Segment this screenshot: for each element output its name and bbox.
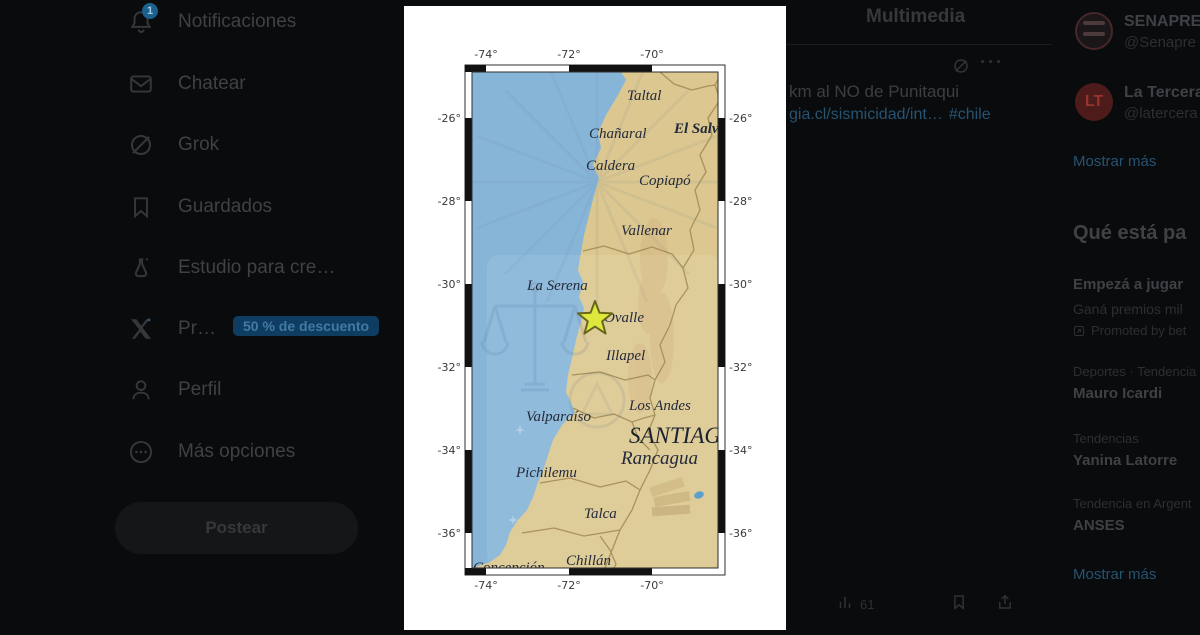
trend-subtitle: Ganá premios mil	[1073, 301, 1183, 317]
sidebar-item-label: Pr…	[178, 318, 216, 340]
grok-actions-icon[interactable]	[952, 57, 970, 75]
share-button[interactable]	[996, 593, 1014, 616]
envelope-icon	[128, 71, 154, 97]
tweet-link[interactable]: gia.cl/sismicidad/int…	[789, 106, 943, 123]
city-label: Pichilemu	[515, 465, 577, 481]
sidebar-item-label: Más opciones	[178, 441, 295, 463]
sidebar-item-grok[interactable]: Grok	[118, 127, 154, 163]
sidebar-item-more[interactable]: Más opciones	[118, 434, 154, 470]
map-lat-labels-right: -26° -28° -30° -32° -34° -36°	[729, 112, 752, 540]
sidebar-item-label: Notificaciones	[178, 11, 296, 33]
sidebar-item-profile[interactable]: Perfil	[118, 372, 154, 408]
share-icon	[996, 593, 1014, 616]
trend-category: Deportes · Tendencia	[1073, 364, 1196, 379]
svg-text:-30°: -30°	[438, 278, 461, 291]
svg-text:-32°: -32°	[438, 361, 461, 374]
city-label: Los Andes	[628, 398, 691, 414]
svg-text:-34°: -34°	[729, 444, 752, 457]
tweet-text: km al NO de Punitaqui	[789, 82, 959, 102]
more-menu-icon[interactable]: ···	[980, 52, 1004, 73]
avatar-initials: LT	[1085, 93, 1103, 111]
svg-text:-70°: -70°	[640, 48, 663, 61]
avatar[interactable]: LT	[1075, 83, 1113, 121]
city-label: Talca	[584, 506, 617, 522]
account-name[interactable]: SENAPRE	[1124, 13, 1200, 31]
svg-text:-26°: -26°	[729, 112, 752, 125]
city-label: La Serena	[526, 278, 588, 294]
svg-text:-74°: -74°	[474, 579, 497, 592]
account-handle: @latercera	[1124, 105, 1198, 122]
svg-text:-36°: -36°	[438, 527, 461, 540]
lightbox-photo-seismic-map[interactable]: Taltal Chañaral El Salvador Caldera Copi…	[404, 6, 786, 630]
svg-text:-70°: -70°	[640, 579, 663, 592]
svg-text:-36°: -36°	[729, 527, 752, 540]
trend-title[interactable]: Yanina Latorre	[1073, 452, 1177, 469]
person-icon	[128, 377, 154, 403]
grok-icon	[128, 132, 154, 158]
sidebar-item-label: Guardados	[178, 196, 272, 218]
city-label: Chillán	[566, 553, 611, 569]
sidebar-item-label: Perfil	[178, 379, 221, 401]
sidebar-item-label: Grok	[178, 134, 219, 156]
map-lon-labels-top: -74° -72° -70°	[474, 48, 663, 61]
sidebar-item-bookmarks[interactable]: Guardados	[118, 189, 154, 225]
avatar[interactable]	[1075, 12, 1113, 50]
post-button[interactable]: Postear	[115, 502, 358, 554]
svg-text:-72°: -72°	[557, 48, 580, 61]
tweet-hashtag[interactable]: #chile	[949, 106, 991, 123]
city-label: Chañaral	[589, 126, 647, 142]
city-label: Caldera	[586, 158, 635, 174]
svg-text:-28°: -28°	[438, 195, 461, 208]
flask-icon	[128, 255, 154, 281]
x-logo-icon	[128, 316, 154, 342]
svg-text:-72°: -72°	[557, 579, 580, 592]
show-more-link[interactable]: Mostrar más	[1073, 153, 1156, 170]
trend-category: Tendencia en Argent	[1073, 496, 1192, 511]
bookmark-button[interactable]	[950, 593, 968, 616]
views-button[interactable]: 61	[836, 593, 874, 616]
trend-title[interactable]: Empezá a jugar	[1073, 276, 1183, 293]
premium-discount-badge[interactable]: 50 % de descuento	[233, 316, 379, 336]
more-circle-icon	[128, 439, 154, 465]
trend-promoted: Promoted by bet	[1073, 323, 1186, 338]
bookmark-icon	[950, 593, 968, 616]
account-handle: @Senapre	[1124, 34, 1196, 51]
trend-title[interactable]: ANSES	[1073, 517, 1125, 534]
sidebar-item-premium[interactable]: Pr…	[118, 311, 154, 347]
svg-text:-74°: -74°	[474, 48, 497, 61]
map-lat-labels-left: -26° -28° -30° -32° -34° -36°	[438, 112, 461, 540]
sidebar-item-label: Chatear	[178, 73, 246, 95]
city-label: Vallenar	[621, 223, 672, 239]
svg-text:-28°: -28°	[729, 195, 752, 208]
trends-header: Qué está pa	[1073, 222, 1186, 245]
city-label: Valparaíso	[526, 409, 592, 425]
show-more-link[interactable]: Mostrar más	[1073, 566, 1156, 583]
analytics-icon	[836, 593, 854, 616]
chile-seismic-map: Taltal Chañaral El Salvador Caldera Copi…	[404, 6, 786, 630]
divider	[786, 44, 1052, 45]
trend-title[interactable]: Mauro Icardi	[1073, 385, 1162, 402]
account-name[interactable]: La Tercera	[1124, 84, 1200, 102]
notification-badge: 1	[142, 3, 158, 19]
sidebar-item-creator-studio[interactable]: Estudio para cre…	[118, 250, 154, 286]
trend-category: Tendencias	[1073, 431, 1139, 446]
sidebar-item-notifications[interactable]: 1 Notificaciones	[118, 4, 154, 40]
bookmark-icon	[128, 194, 154, 220]
svg-text:-32°: -32°	[729, 361, 752, 374]
svg-text:-26°: -26°	[438, 112, 461, 125]
svg-text:-30°: -30°	[729, 278, 752, 291]
page-title: Multimedia	[866, 6, 965, 28]
views-count: 61	[860, 597, 874, 612]
city-label: Illapel	[605, 348, 645, 364]
city-label: Copiapó	[639, 173, 691, 189]
sidebar-item-messages[interactable]: Chatear	[118, 66, 154, 102]
sidebar-item-label: Estudio para cre…	[178, 257, 335, 279]
tweet-link-row: gia.cl/sismicidad/int…#chile	[789, 106, 991, 124]
promoted-icon	[1073, 325, 1085, 337]
city-label: Taltal	[627, 88, 661, 104]
svg-text:-34°: -34°	[438, 444, 461, 457]
bell-icon: 1	[128, 9, 154, 35]
map-lon-labels-bottom: -74° -72° -70°	[474, 579, 663, 592]
city-label: Rancagua	[620, 448, 698, 469]
